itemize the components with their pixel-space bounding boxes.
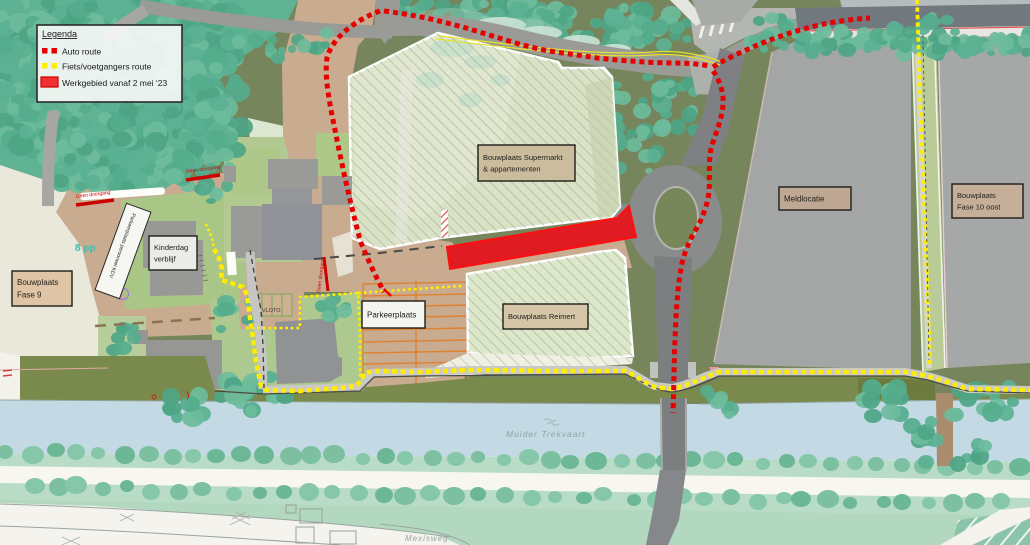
svg-text:Mexisweg: Mexisweg [405, 534, 449, 543]
svg-text:Muider Trekvaart: Muider Trekvaart [506, 429, 586, 439]
svg-text:verblijf: verblijf [154, 254, 177, 263]
svg-text:Parkeerplaats: Parkeerplaats [367, 310, 416, 319]
svg-text:Meldlocatie: Meldlocatie [784, 194, 825, 203]
svg-text:Bouwplaats: Bouwplaats [957, 191, 996, 200]
svg-text:Auto route: Auto route [62, 47, 101, 57]
svg-text:Bouwplaats Supermarkt: Bouwplaats Supermarkt [483, 153, 564, 162]
svg-text:Fiets/voetgangers route: Fiets/voetgangers route [62, 62, 152, 72]
svg-text:Kinderdag: Kinderdag [154, 243, 188, 252]
svg-text:8 pp: 8 pp [75, 243, 96, 254]
svg-text:Werkgebied vanaf 2 mei ‘23: Werkgebied vanaf 2 mei ‘23 [62, 78, 167, 88]
svg-text:& appartementen: & appartementen [483, 164, 541, 173]
svg-text:Bouwplaats: Bouwplaats [17, 278, 58, 287]
svg-text:VLOTO: VLOTO [262, 308, 281, 314]
svg-text:Fase 10 oost: Fase 10 oost [957, 202, 1001, 211]
svg-text:Fase 9: Fase 9 [17, 291, 42, 300]
svg-text:Legenda: Legenda [42, 29, 77, 39]
svg-text:Bouwplaats Reimert: Bouwplaats Reimert [508, 312, 576, 321]
